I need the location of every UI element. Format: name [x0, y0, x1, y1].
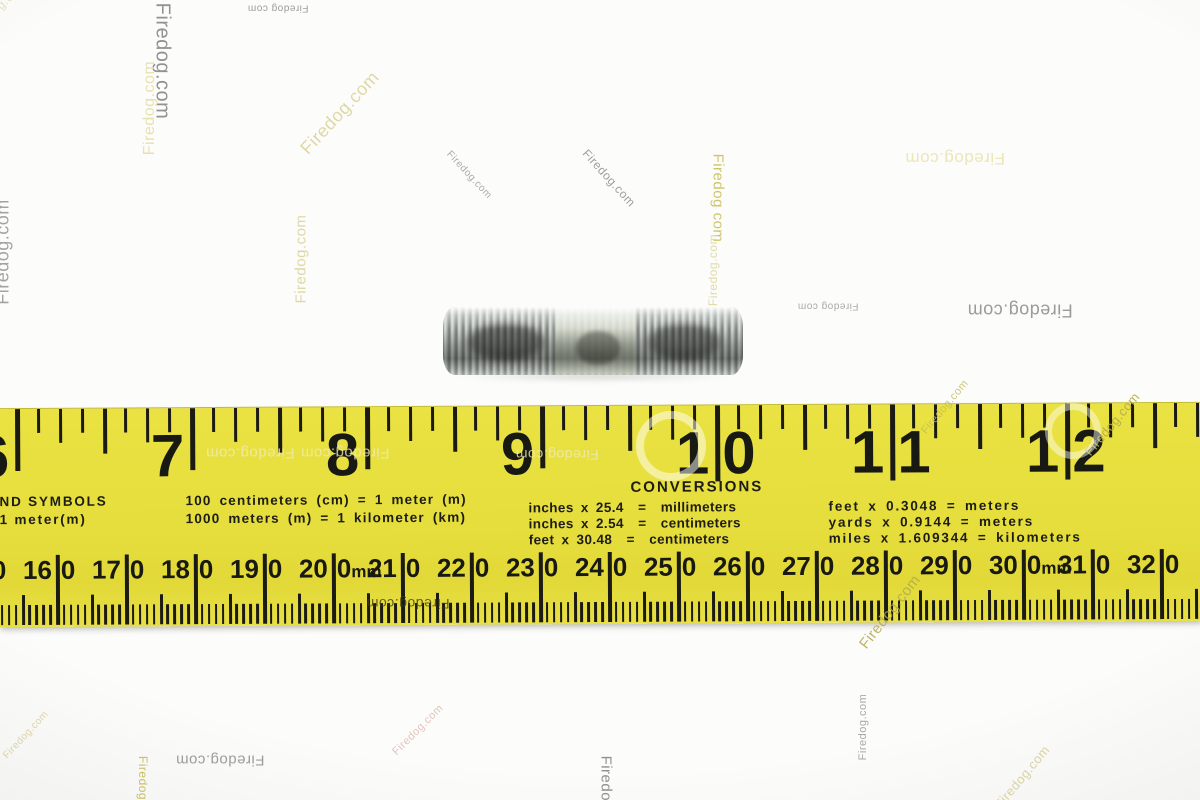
conversion-line: yards x 0.9144 = meters: [829, 513, 1082, 530]
millimeter-tick: [877, 601, 880, 621]
mm-number-right: 0: [268, 556, 283, 582]
firedog-watermark: Firedog com: [710, 154, 727, 243]
millimeter-tick: [1181, 599, 1184, 619]
symbols-text-fragment: ND SYMBOLS1 meter(m): [0, 493, 108, 530]
mm-number-right: 0: [406, 555, 421, 581]
millimeter-tick: [1139, 599, 1142, 619]
firedog-watermark: Firedog.com: [176, 752, 265, 769]
firedog-watermark: Firedog.com: [857, 694, 869, 761]
mm-number-right: 0: [889, 552, 904, 578]
firedog-watermark: Firedog.com: [1, 709, 51, 761]
mm-number-right: 0: [682, 553, 697, 579]
inch-number-left: 8: [326, 431, 360, 479]
mm-number-left: 30: [989, 552, 1018, 578]
millimeter-tick: [463, 603, 466, 623]
eighth-inch-tick: [824, 405, 827, 429]
millimeter-tick: [97, 605, 100, 625]
quarter-inch-tick: [934, 404, 937, 438]
quarter-inch-tick: [671, 406, 674, 440]
firedog-watermark: Firedog.com: [905, 148, 1005, 168]
millimeter-tick: [801, 601, 804, 621]
centimeter-tick: [470, 553, 474, 623]
millimeter-tick: [684, 602, 687, 622]
mm-number-right: 0: [1096, 551, 1111, 577]
millimeter-tick: [656, 602, 659, 622]
millimeter-tick: [394, 603, 397, 623]
millimeter-tick: [318, 603, 321, 623]
millimeter-tick: [215, 604, 218, 624]
threaded-stud: [443, 307, 743, 375]
millimeter-tick: [532, 602, 535, 622]
millimeter-tick: [994, 600, 997, 620]
half-inch-tick: [978, 404, 982, 449]
millimeter-tick: [1112, 599, 1115, 619]
eighth-inch-tick: [37, 409, 40, 433]
inch-number-right: 2: [1072, 427, 1106, 475]
millimeter-tick: [1098, 599, 1101, 619]
mm-number-left: 18: [161, 556, 190, 582]
eighth-inch-tick: [212, 408, 215, 432]
conversion-line: feet x 30.48 = centimeters: [529, 531, 741, 548]
half-centimeter-tick: [21, 595, 24, 625]
metric-equivalents-line: 1000 meters (m) = 1 kilometer (km): [186, 509, 467, 528]
millimeter-tick: [208, 604, 211, 624]
mm-number-right: 0: [61, 557, 76, 583]
mm-number-right: 0: [0, 557, 6, 583]
millimeter-tick: [691, 602, 694, 622]
millimeter-tick: [843, 601, 846, 621]
conversions-title: CONVERSIONS: [630, 478, 763, 496]
centimeter-tick: [746, 551, 750, 621]
eighth-inch-tick: [999, 404, 1002, 428]
mm-number-left: 31: [1058, 551, 1087, 577]
eighth-inch-tick: [606, 406, 609, 430]
mm-number-right: 0: [475, 555, 490, 581]
mm-number-left: 23: [506, 554, 535, 580]
quarter-inch-tick: [146, 408, 149, 442]
millimeter-tick: [1153, 599, 1156, 619]
firedog-watermark: Firedog.com: [0, 0, 28, 38]
quarter-inch-tick: [321, 407, 324, 441]
centimeter-tick: [539, 552, 543, 622]
millimeter-tick: [601, 602, 604, 622]
eighth-inch-tick: [649, 406, 652, 430]
millimeter-tick: [256, 604, 259, 624]
product-photo: 6789101112 ND SYMBOLS1 meter(m) 100 cent…: [0, 0, 1200, 800]
millimeter-tick: [346, 603, 349, 623]
centimeter-tick: [1091, 549, 1095, 619]
millimeter-tick: [629, 602, 632, 622]
millimeter-tick: [732, 601, 735, 621]
millimeter-tick: [567, 602, 570, 622]
millimeter-tick: [905, 600, 908, 620]
half-inch-tick: [628, 406, 632, 451]
millimeter-tick: [484, 603, 487, 623]
firedog-watermark: Firedog.com: [293, 215, 310, 304]
millimeter-tick: [898, 600, 901, 620]
millimeter-tick: [718, 601, 721, 621]
firedog-watermark: Firedog.com: [0, 199, 14, 305]
eighth-inch-tick: [431, 407, 434, 431]
centimeter-tick: [815, 551, 819, 621]
half-centimeter-tick: [849, 591, 852, 621]
millimeter-tick: [429, 603, 432, 623]
half-centimeter-tick: [1194, 589, 1197, 619]
millimeter-tick: [1167, 599, 1170, 619]
millimeter-tick: [477, 603, 480, 623]
millimeter-tick: [1063, 600, 1066, 620]
inch-tick: [15, 409, 20, 471]
half-inch-tick: [453, 407, 457, 452]
millimeter-tick: [1036, 600, 1039, 620]
millimeter-tick: [663, 602, 666, 622]
millimeter-tick: [8, 605, 11, 625]
millimeter-tick: [339, 603, 342, 623]
millimeter-tick: [1001, 600, 1004, 620]
firedog-watermark: Firedog.com: [967, 300, 1073, 321]
centimeter-tick: [401, 553, 405, 623]
millimeter-tick: [670, 602, 673, 622]
firedog-watermark: Firedog.com: [390, 702, 446, 758]
millimeter-tick: [15, 605, 18, 625]
millimeter-tick: [104, 605, 107, 625]
inch-tick: [190, 408, 195, 470]
millimeter-tick: [35, 605, 38, 625]
firedog-watermark: Firedog.com: [296, 67, 383, 159]
metric-equivalents-line: 100 centimeters (cm) = 1 meter (m): [185, 491, 466, 510]
millimeter-tick: [277, 604, 280, 624]
inch-number-left: 1: [676, 429, 710, 477]
inch-number-left: 7: [151, 432, 185, 480]
millimeter-tick: [856, 601, 859, 621]
millimeter-tick: [1077, 599, 1080, 619]
centimeter-tick: [677, 552, 681, 622]
inch-tick: [1065, 404, 1070, 480]
millimeter-tick: [636, 602, 639, 622]
centimeter-tick: [884, 550, 888, 620]
millimeter-tick: [1015, 600, 1018, 620]
millimeter-tick: [146, 604, 149, 624]
half-centimeter-tick: [780, 591, 783, 621]
millimeter-tick: [201, 604, 204, 624]
millimeter-tick: [925, 600, 928, 620]
millimeter-tick: [380, 603, 383, 623]
millimeter-tick: [1188, 599, 1191, 619]
quarter-inch-tick: [59, 409, 62, 443]
eighth-inch-tick: [256, 408, 259, 432]
millimeter-tick: [1043, 600, 1046, 620]
millimeter-tick: [912, 600, 915, 620]
inch-scale: [0, 403, 1200, 409]
half-centimeter-tick: [435, 593, 438, 623]
mm-number-right: 0: [130, 556, 145, 582]
millimeter-tick: [442, 603, 445, 623]
millimeter-tick: [63, 605, 66, 625]
half-centimeter-tick: [366, 593, 369, 623]
half-centimeter-tick: [573, 592, 576, 622]
millimeter-tick: [1008, 600, 1011, 620]
metric-equivalents-text: 100 centimeters (cm) = 1 meter (m)1000 m…: [185, 491, 466, 528]
mm-number-left: 27: [782, 553, 811, 579]
half-inch-tick: [278, 408, 282, 453]
millimeter-tick: [808, 601, 811, 621]
millimeter-tick: [1050, 600, 1053, 620]
millimeter-tick: [408, 603, 411, 623]
symbols-text-line: 1 meter(m): [0, 511, 108, 530]
millimeter-tick: [981, 600, 984, 620]
quarter-inch-tick: [234, 408, 237, 442]
millimeter-tick: [153, 604, 156, 624]
millimeter-tick: [498, 603, 501, 623]
millimeter-tick: [270, 604, 273, 624]
millimeter-tick: [511, 602, 514, 622]
millimeter-tick: [760, 601, 763, 621]
millimeter-tick: [1029, 600, 1032, 620]
centimeter-tick: [1160, 549, 1164, 619]
half-centimeter-tick: [1125, 589, 1128, 619]
millimeter-tick: [587, 602, 590, 622]
inch-tick: [540, 406, 545, 468]
millimeter-tick: [939, 600, 942, 620]
quarter-inch-tick: [759, 405, 762, 439]
millimeter-tick: [1174, 599, 1177, 619]
mm-number-left: 28: [851, 553, 880, 579]
millimeter-tick: [525, 602, 528, 622]
millimeter-tick: [974, 600, 977, 620]
centimeter-tick: [1022, 550, 1026, 620]
millimeter-tick: [249, 604, 252, 624]
mm-number-left: 29: [920, 552, 949, 578]
millimeter-tick: [360, 603, 363, 623]
symbols-text-line: ND SYMBOLS: [0, 493, 108, 512]
millimeter-tick: [387, 603, 390, 623]
inch-number-right: 1: [897, 428, 931, 476]
half-centimeter-tick: [228, 594, 231, 624]
millimeter-tick: [1070, 600, 1073, 620]
millimeter-tick: [560, 602, 563, 622]
millimeter-tick: [863, 601, 866, 621]
mm-number-right: 0: [1165, 551, 1180, 577]
millimeter-tick: [415, 603, 418, 623]
millimeter-tick: [774, 601, 777, 621]
eighth-inch-tick: [387, 407, 390, 431]
quarter-inch-tick: [496, 407, 499, 441]
millimeter-tick: [787, 601, 790, 621]
millimeter-tick: [1084, 599, 1087, 619]
millimeter-tick: [870, 601, 873, 621]
centimeter-tick: [953, 550, 957, 620]
millimeter-tick: [235, 604, 238, 624]
firedog-watermark: Firedog com: [797, 301, 858, 312]
mm-number-right: 0: [199, 556, 214, 582]
millimeter-tick: [794, 601, 797, 621]
half-centimeter-tick: [711, 591, 714, 621]
firedog-watermark: Firedog.com: [706, 234, 720, 306]
inch-tick: [715, 405, 720, 481]
inch-tick: [890, 404, 895, 480]
inch-number-left: 1: [851, 429, 885, 477]
millimeter-tick: [967, 600, 970, 620]
half-centimeter-tick: [504, 592, 507, 622]
millimeter-tick: [311, 604, 314, 624]
millimeter-tick: [615, 602, 618, 622]
inch-number-left: 6: [0, 433, 9, 481]
millimeter-tick: [373, 603, 376, 623]
millimeter-tick: [77, 605, 80, 625]
conversions-left-column: inches x 25.4 = millimetersinches x 2.54…: [528, 499, 741, 548]
millimeter-tick: [166, 604, 169, 624]
millimeter-tick: [1146, 599, 1149, 619]
inch-number-right: 0: [722, 429, 756, 477]
mm-number-left: 24: [575, 554, 604, 580]
centimeter-tick: [56, 555, 60, 625]
mm-number-left: 32: [1127, 551, 1156, 577]
eighth-inch-tick: [124, 408, 127, 432]
millimeter-tick: [449, 603, 452, 623]
eighth-inch-tick: [81, 409, 84, 433]
millimeter-tick: [725, 601, 728, 621]
millimeter-tick: [822, 601, 825, 621]
photo-vignette: [0, 0, 1200, 800]
millimeter-tick: [580, 602, 583, 622]
eighth-inch-tick: [956, 404, 959, 428]
millimeter-tick: [70, 605, 73, 625]
quarter-inch-tick: [1196, 403, 1199, 437]
centimeter-tick: [332, 553, 336, 623]
millimeter-tick: [111, 605, 114, 625]
millimeter-tick: [1105, 599, 1108, 619]
millimeter-tick: [594, 602, 597, 622]
conversion-line: inches x 2.54 = centimeters: [529, 515, 741, 532]
quarter-inch-tick: [1021, 404, 1024, 438]
centimeter-tick: [125, 554, 129, 624]
centimeter-tick: [194, 554, 198, 624]
mm-number-right: 0: [958, 552, 973, 578]
millimeter-tick: [932, 600, 935, 620]
eighth-inch-tick: [299, 408, 302, 432]
mm-number-left: 16: [23, 557, 52, 583]
eighth-inch-tick: [562, 406, 565, 430]
mm-number-left: 25: [644, 554, 673, 580]
eighth-inch-tick: [474, 407, 477, 431]
millimeter-tick: [705, 601, 708, 621]
millimeter-tick: [118, 605, 121, 625]
firedog-watermark: Firedog com: [247, 3, 308, 14]
millimeter-tick: [518, 602, 521, 622]
millimeter-tick: [304, 604, 307, 624]
half-inch-tick: [103, 409, 107, 454]
half-centimeter-tick: [159, 594, 162, 624]
millimeter-tick: [546, 602, 549, 622]
quarter-inch-tick: [584, 406, 587, 440]
firedog-watermark: Firedog.com: [598, 756, 615, 800]
millimeter-tick: [173, 604, 176, 624]
firedog-watermark: Firedog.com: [444, 149, 494, 201]
millimeter-tick: [946, 600, 949, 620]
mm-number-right: 0: [544, 554, 559, 580]
firedog-watermark: Firedog.com: [136, 756, 150, 800]
mm-number-right: 0: [613, 554, 628, 580]
millimeter-tick: [753, 601, 756, 621]
firedog-watermark: Firedog.com: [580, 146, 639, 209]
millimeter-tick: [456, 603, 459, 623]
millimeter-tick: [222, 604, 225, 624]
quarter-inch-tick: [846, 405, 849, 439]
millimeter-tick: [1, 605, 4, 625]
firedog-watermark: Firedog.com: [141, 61, 159, 155]
mm-number-left: 20: [299, 555, 328, 581]
millimeter-tick: [132, 604, 135, 624]
millimeter-tick: [960, 600, 963, 620]
millimeter-tick: [139, 604, 142, 624]
millimeter-tick: [325, 603, 328, 623]
half-centimeter-tick: [918, 590, 921, 620]
millimeter-tick: [422, 603, 425, 623]
millimeter-tick: [180, 604, 183, 624]
millimeter-scale-labels: 150160170180190200mm21022023024025026027…: [0, 403, 1200, 409]
millimeter-tick: [649, 602, 652, 622]
millimeter-tick: [739, 601, 742, 621]
stud-cylindrical-shading: [443, 307, 743, 375]
millimeter-tick: [1132, 599, 1135, 619]
mm-number-left: 26: [713, 553, 742, 579]
eighth-inch-tick: [1174, 403, 1177, 427]
millimeter-tick: [829, 601, 832, 621]
millimeter-tick: [891, 600, 894, 620]
millimeter-tick: [491, 603, 494, 623]
mm-number-left: 22: [437, 555, 466, 581]
millimeter-tick: [242, 604, 245, 624]
eighth-inch-tick: [781, 405, 784, 429]
half-inch-tick: [803, 405, 807, 450]
mm-number-left: 19: [230, 556, 259, 582]
millimeter-tick: [291, 604, 294, 624]
inch-scale-labels: 6789101112: [0, 403, 1200, 409]
millimeter-tick: [84, 605, 87, 625]
millimeter-tick: [187, 604, 190, 624]
mm-number-left: 21: [368, 555, 397, 581]
half-centimeter-tick: [642, 592, 645, 622]
firedog-watermark: Firedog.com: [151, 3, 174, 120]
firedog-watermark: Firedog.com: [991, 742, 1052, 800]
half-centimeter-tick: [297, 594, 300, 624]
millimeter-tick: [553, 602, 556, 622]
millimeter-tick: [28, 605, 31, 625]
mm-number-right: 0: [751, 553, 766, 579]
millimeter-tick: [49, 605, 52, 625]
millimeter-tick: [284, 604, 287, 624]
millimeter-tick: [836, 601, 839, 621]
quarter-inch-tick: [409, 407, 412, 441]
conversion-line: miles x 1.609344 = kilometers: [829, 529, 1082, 546]
quarter-inch-tick: [1109, 403, 1112, 437]
half-centimeter-tick: [1056, 590, 1059, 620]
eighth-inch-tick: [1131, 403, 1134, 427]
yellow-ruler: 6789101112 ND SYMBOLS1 meter(m) 100 cent…: [0, 402, 1200, 627]
inch-tick: [365, 407, 370, 469]
half-inch-tick: [1152, 403, 1156, 448]
conversion-line: inches x 25.4 = millimeters: [528, 499, 740, 516]
mm-number-right: 0: [820, 553, 835, 579]
centimeter-tick: [608, 552, 612, 622]
millimeter-tick: [1119, 599, 1122, 619]
millimeter-tick: [353, 603, 356, 623]
millimeter-tick: [698, 601, 701, 621]
millimeter-tick: [622, 602, 625, 622]
millimeter-tick: [42, 605, 45, 625]
half-centimeter-tick: [90, 595, 93, 625]
millimeter-scale: [0, 403, 1200, 409]
